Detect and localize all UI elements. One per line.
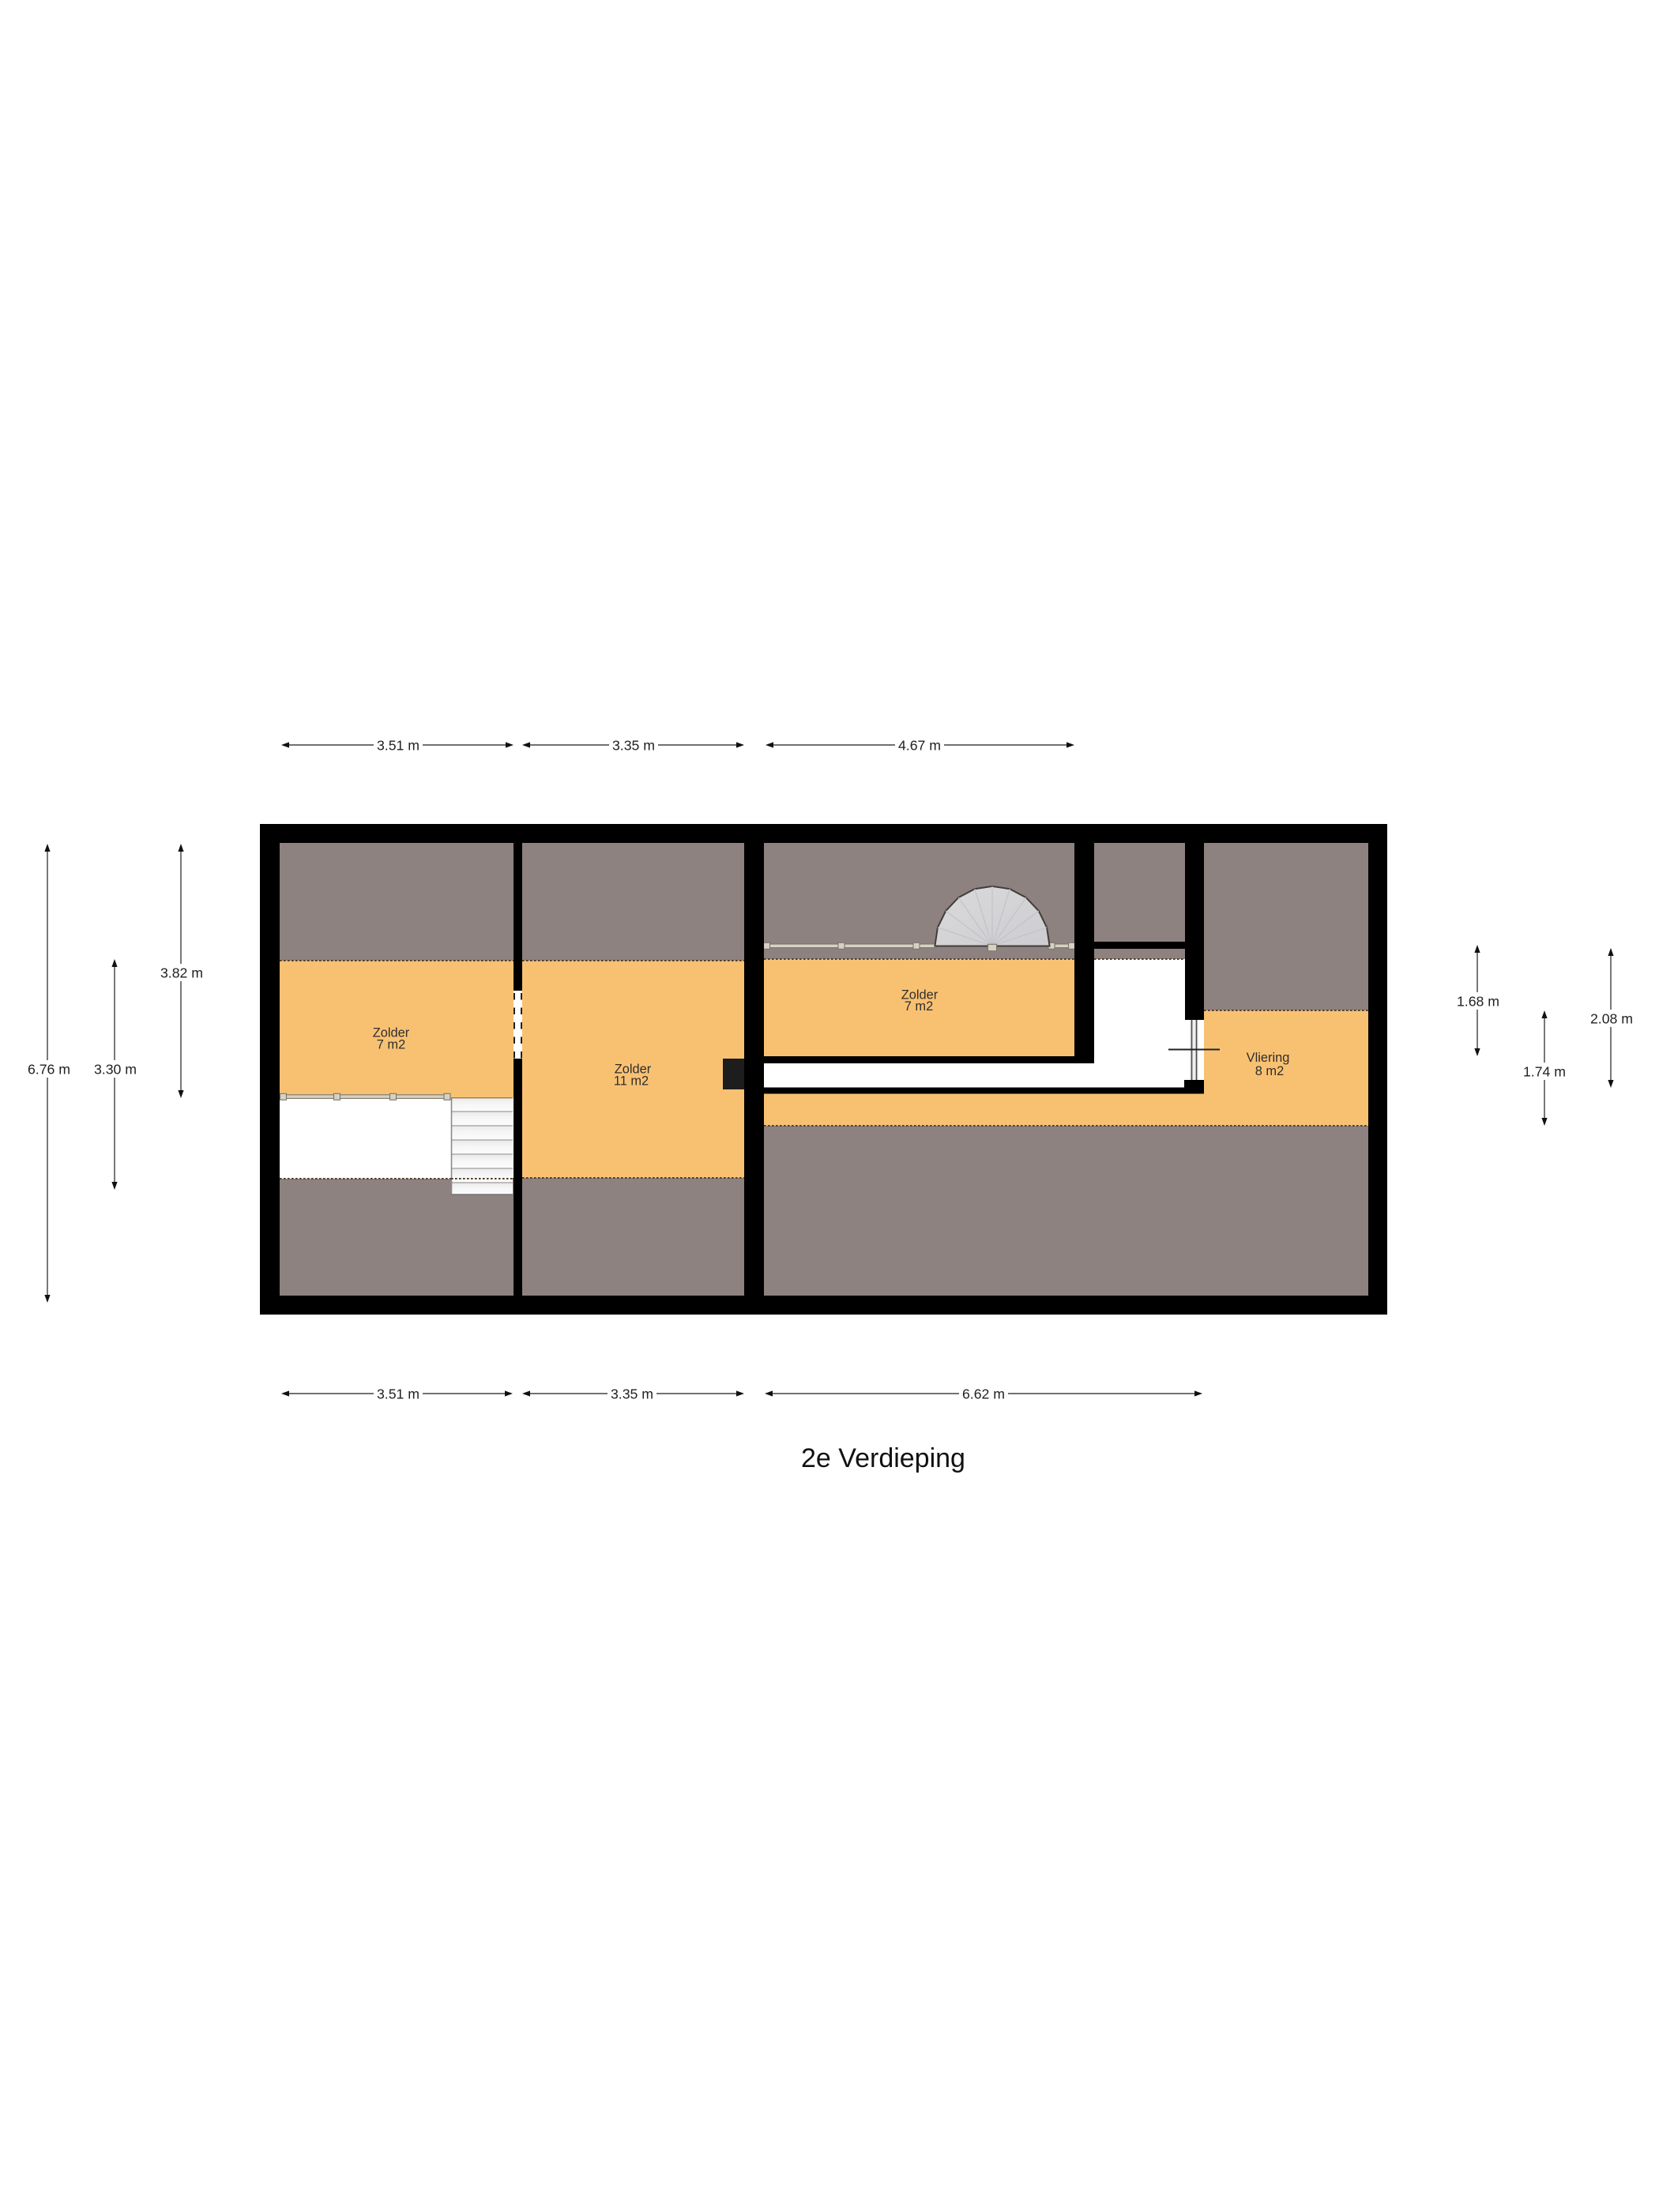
svg-text:7 m2: 7 m2 — [905, 999, 933, 1014]
svg-text:1.68 m: 1.68 m — [1457, 994, 1499, 1010]
svg-text:3.30 m: 3.30 m — [94, 1062, 137, 1078]
svg-text:3.51 m: 3.51 m — [377, 1386, 419, 1402]
svg-text:2.08 m: 2.08 m — [1590, 1011, 1633, 1027]
svg-text:4.67 m: 4.67 m — [898, 738, 941, 754]
svg-text:2e Verdieping: 2e Verdieping — [801, 1443, 965, 1473]
svg-text:3.35 m: 3.35 m — [611, 1386, 653, 1402]
svg-text:8 m2: 8 m2 — [1255, 1064, 1284, 1078]
svg-text:6.62 m: 6.62 m — [962, 1386, 1005, 1402]
svg-text:6.76 m: 6.76 m — [28, 1062, 70, 1078]
svg-text:11 m2: 11 m2 — [614, 1074, 649, 1089]
svg-text:Vliering: Vliering — [1247, 1051, 1290, 1065]
svg-text:3.82 m: 3.82 m — [160, 965, 203, 981]
svg-text:3.35 m: 3.35 m — [612, 738, 655, 754]
svg-text:7 m2: 7 m2 — [377, 1038, 405, 1052]
svg-text:1.74 m: 1.74 m — [1523, 1064, 1566, 1080]
svg-text:3.51 m: 3.51 m — [377, 738, 419, 754]
